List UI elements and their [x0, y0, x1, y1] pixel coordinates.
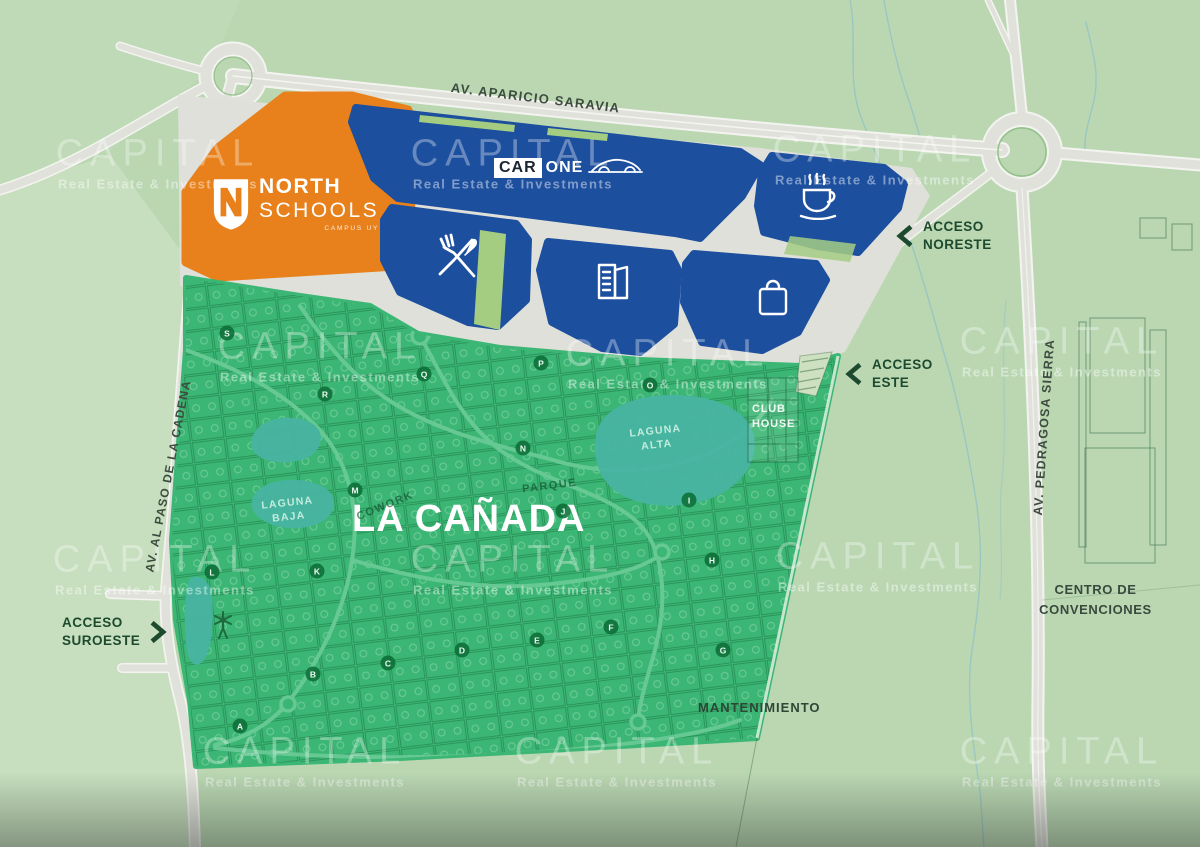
- car-one-word-one: ONE: [546, 159, 584, 177]
- club-house-label: CLUB HOUSE: [752, 402, 795, 432]
- restaurant-icon: [432, 232, 482, 282]
- shield-icon: [212, 176, 250, 232]
- lot-marker-A: A: [233, 719, 248, 734]
- car-one-word-car: CAR: [494, 158, 542, 178]
- north-schools-logo: NORTH SCHOOLS CAMPUS UY: [212, 176, 379, 233]
- lot-marker-K: K: [310, 564, 325, 579]
- laguna-baja-label: LAGUNA BAJA: [261, 493, 316, 527]
- lot-marker-S: S: [220, 326, 235, 341]
- acceso-este: ACCESO ESTE: [843, 356, 933, 392]
- lot-marker-C: C: [381, 656, 396, 671]
- chevron-left-icon: [843, 360, 865, 388]
- north-schools-tagline: CAMPUS UY: [259, 226, 379, 233]
- windmill-icon: [210, 610, 236, 640]
- lot-marker-F: F: [604, 620, 619, 635]
- lot-marker-O: O: [643, 378, 658, 393]
- north-schools-name-line2: SCHOOLS: [259, 200, 379, 221]
- car-one-logo: CAR ONE: [494, 156, 643, 180]
- club-house-line1: CLUB: [752, 402, 795, 417]
- car-icon: [587, 156, 643, 180]
- acceso-noreste: ACCESO NORESTE: [894, 218, 992, 254]
- lot-marker-N: N: [516, 441, 531, 456]
- club-house-line2: HOUSE: [752, 417, 795, 432]
- acceso-este-line1: ACCESO: [872, 356, 933, 374]
- lot-marker-I: I: [682, 493, 697, 508]
- lot-marker-R: R: [318, 387, 333, 402]
- office-building-icon: [592, 258, 632, 302]
- acceso-este-line2: ESTE: [872, 374, 933, 392]
- mantenimiento-label: MANTENIMIENTO: [698, 700, 821, 715]
- site-plan-map: NORTH SCHOOLS CAMPUS UY CAR ONE: [0, 0, 1200, 847]
- lot-marker-G: G: [716, 643, 731, 658]
- lot-marker-M: M: [348, 483, 363, 498]
- acceso-suroeste-line2: SUROESTE: [62, 632, 140, 650]
- lot-marker-D: D: [455, 643, 470, 658]
- centro-convenciones-line2: CONVENCIONES: [1008, 600, 1183, 620]
- chevron-left-icon: [894, 222, 916, 250]
- centro-convenciones-label: CENTRO DE CONVENCIONES: [1008, 580, 1183, 619]
- lot-marker-L: L: [205, 565, 220, 580]
- chevron-right-icon: [147, 618, 169, 646]
- lot-marker-E: E: [530, 633, 545, 648]
- centro-convenciones-line1: CENTRO DE: [1008, 580, 1183, 600]
- north-schools-name-line1: NORTH: [259, 176, 379, 197]
- acceso-suroeste: ACCESO SUROESTE: [62, 614, 169, 650]
- coffee-icon: [796, 172, 840, 220]
- acceso-noreste-line1: ACCESO: [923, 218, 992, 236]
- lot-marker-J: J: [556, 504, 571, 519]
- acceso-noreste-line2: NORESTE: [923, 236, 992, 254]
- lot-marker-H: H: [705, 553, 720, 568]
- lot-marker-B: B: [306, 667, 321, 682]
- shopping-bag-icon: [754, 276, 792, 318]
- lot-marker-P: P: [534, 356, 549, 371]
- acceso-suroeste-line1: ACCESO: [62, 614, 140, 632]
- laguna-alta-label: LAGUNA ALTA: [629, 421, 684, 455]
- lot-marker-Q: Q: [417, 367, 432, 382]
